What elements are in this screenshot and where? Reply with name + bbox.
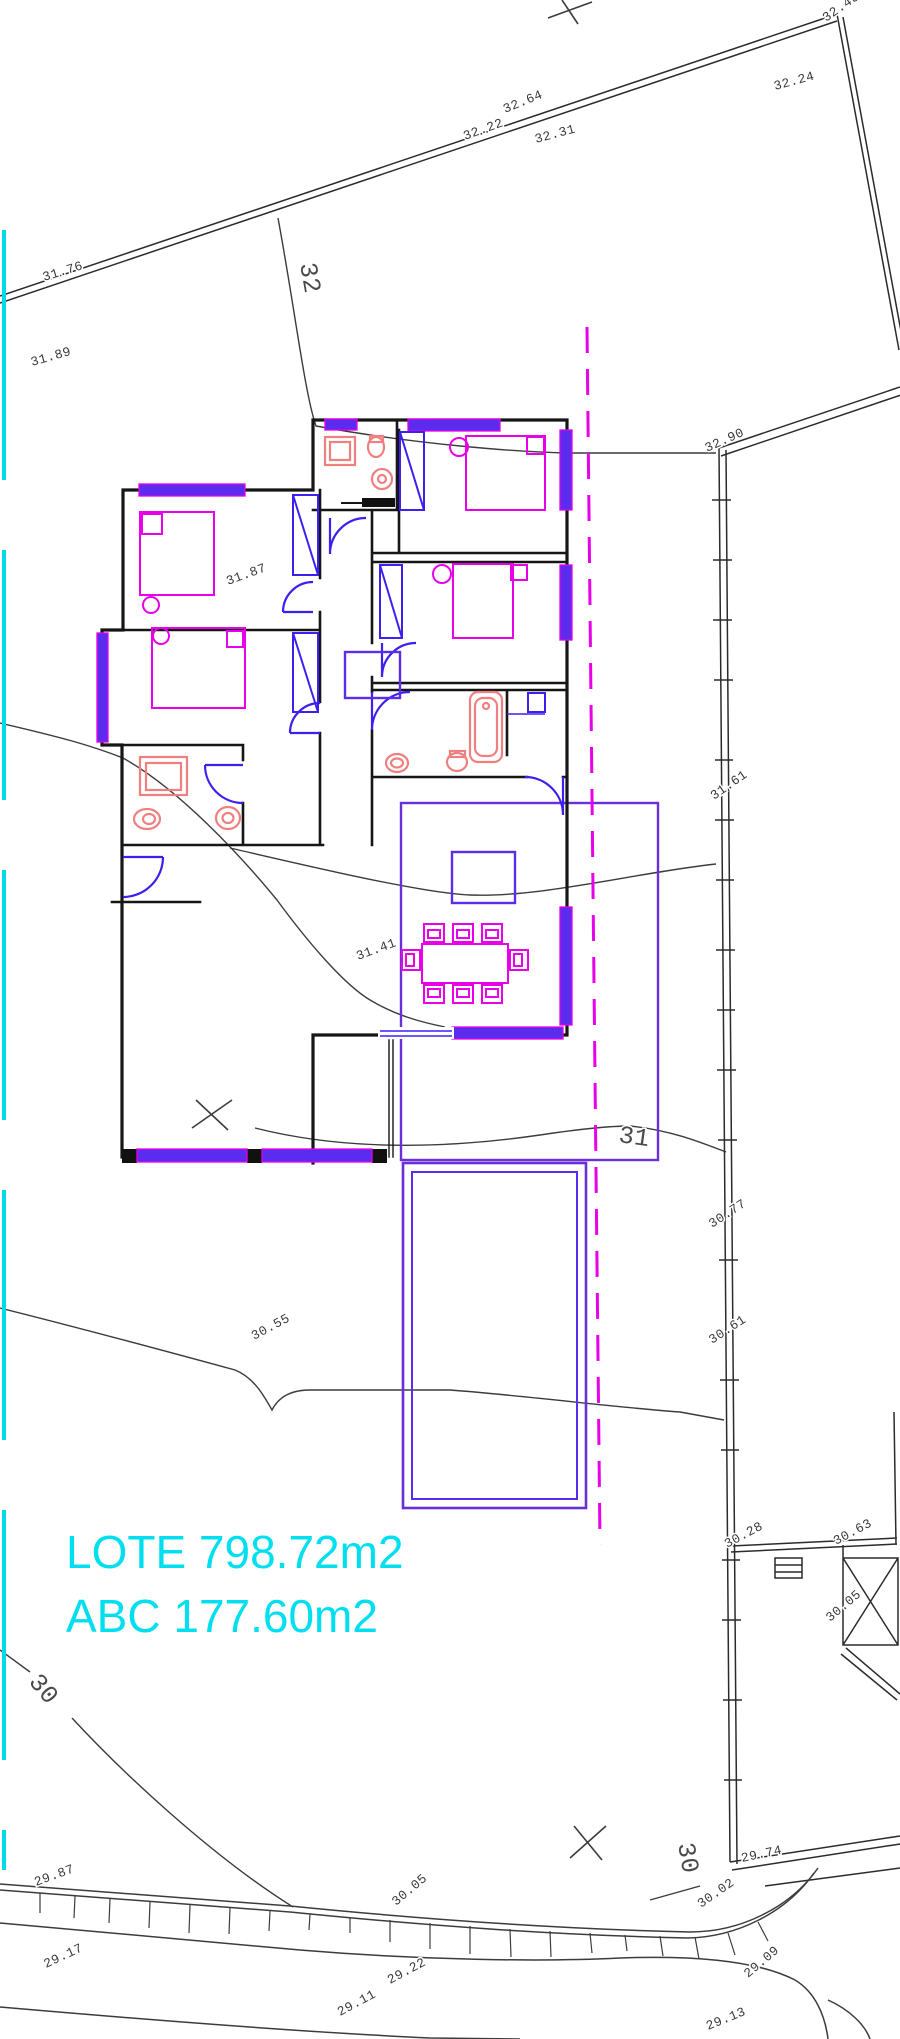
bath-vanity <box>362 498 395 507</box>
wall-column <box>122 1149 137 1163</box>
contour-30-right-line <box>650 1886 700 1900</box>
contour-label: 32 <box>292 260 326 296</box>
elevation-label: 30.02 <box>695 1875 738 1911</box>
dining-table <box>422 944 508 983</box>
labels: 31.76 31.89 32 32.22 32.64 32.31 32.24 3… <box>22 0 875 2034</box>
contour-label: 30 <box>670 1840 704 1876</box>
toilet <box>372 469 392 489</box>
window <box>137 1149 247 1162</box>
steps <box>775 1558 802 1578</box>
window <box>452 1027 563 1039</box>
contour-31-line <box>255 1126 726 1152</box>
wall-column <box>247 1149 262 1163</box>
terrace-pool <box>401 803 658 1508</box>
built-area-label: ABC 177.60m2 <box>66 1590 378 1642</box>
chairs <box>402 924 528 1003</box>
survey-cross-top <box>548 0 592 24</box>
bed <box>140 512 214 595</box>
door <box>525 777 563 815</box>
toilet <box>216 807 240 829</box>
elevation-label: 31.41 <box>354 935 398 963</box>
window <box>139 484 245 496</box>
porch-wall <box>389 1040 393 1157</box>
door <box>290 703 320 733</box>
contour-terrace-line <box>230 848 716 895</box>
contour-mid-house-line <box>0 723 445 1027</box>
elevation-label: 30.61 <box>706 1312 749 1347</box>
site-plan-canvas: 31.76 31.89 32 32.22 32.64 32.31 32.24 3… <box>0 0 900 2039</box>
elevation-label: 30.55 <box>249 1311 293 1344</box>
window <box>560 907 572 1025</box>
door <box>283 582 313 612</box>
elevation-label: 31.76 <box>41 258 85 284</box>
elevation-label: 30.05 <box>389 1871 430 1909</box>
toilet <box>134 809 160 829</box>
window <box>560 430 572 510</box>
contour-pool-line <box>0 1308 724 1420</box>
elevation-label: 30.77 <box>706 1196 749 1231</box>
boundary-east-upper <box>719 387 900 456</box>
elevation-label: 29.11 <box>335 1987 379 2020</box>
elevation-label: 31.87 <box>224 560 268 588</box>
survey-cross-southeast <box>570 1826 606 1860</box>
window <box>560 565 572 640</box>
window <box>97 633 108 742</box>
elevation-label: 32.64 <box>501 87 545 116</box>
contour-32-line <box>278 218 716 453</box>
sink <box>386 754 408 772</box>
bed <box>453 564 513 638</box>
elevation-label: 32.31 <box>533 122 577 147</box>
boundary-north <box>0 14 837 303</box>
window <box>262 1149 372 1162</box>
elevation-label: 29.17 <box>41 1940 85 1971</box>
contour-label: 31 <box>617 1121 652 1154</box>
door <box>330 518 366 554</box>
boundary-east-fence <box>719 448 737 1864</box>
window <box>325 419 357 430</box>
elevation-label: 31.89 <box>29 344 73 370</box>
door <box>123 857 163 897</box>
furniture <box>140 436 545 1003</box>
elevation-label: 29.22 <box>385 1955 429 1988</box>
terrace-outline <box>401 803 658 1160</box>
wall-column <box>372 1149 387 1163</box>
contour-label: 30 <box>22 1669 64 1711</box>
elevation-label: 32.43 <box>820 0 863 25</box>
lot-area-label: LOTE 798.72m2 <box>66 1526 404 1578</box>
elevation-label: 30.28 <box>722 1519 766 1552</box>
door <box>205 765 243 803</box>
elevation-label: 30.63 <box>831 1516 875 1549</box>
survey-marks <box>192 0 606 1860</box>
elevation-label: 32.24 <box>772 69 816 94</box>
elevation-label: 29.13 <box>704 2004 748 2033</box>
steps-treads <box>775 1565 802 1572</box>
bed <box>152 628 245 708</box>
bath-window <box>528 693 545 712</box>
shed <box>841 1545 900 1700</box>
elevation-label: 29.87 <box>32 1861 76 1889</box>
survey-cross-house <box>192 1100 232 1130</box>
elevation-label: 29.09 <box>741 1943 782 1981</box>
window <box>408 419 500 431</box>
axis-dashed-line <box>587 327 600 1545</box>
sliding-door <box>378 1027 454 1039</box>
elevation-label: 32.90 <box>703 425 747 456</box>
pool-inner <box>412 1172 577 1499</box>
boundary-northeast <box>837 14 900 353</box>
fence-ticks <box>712 500 742 1780</box>
pool-outer <box>403 1163 586 1508</box>
contour-lines <box>0 218 726 1907</box>
